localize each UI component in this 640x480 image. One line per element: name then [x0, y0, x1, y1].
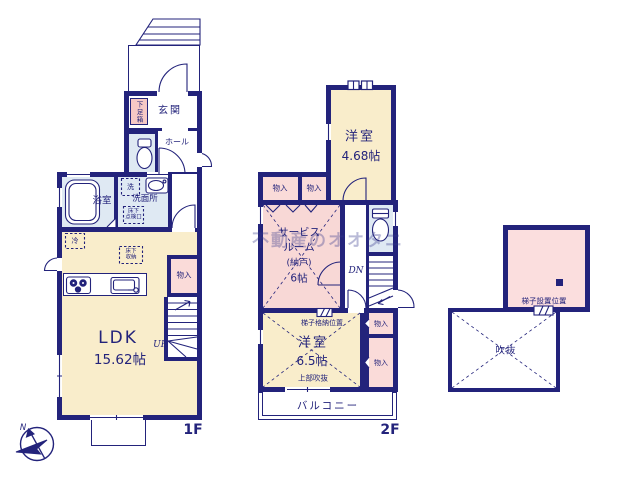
ladder-hatch-2f [317, 309, 332, 317]
closet-2f-top-a-label: 物入 [273, 185, 288, 194]
bedroom1-door-arc [343, 178, 366, 201]
bedroom2-door-arc [348, 290, 366, 308]
closet-door-chevrons [266, 205, 317, 212]
underfloor-access-l2: 点検口 [125, 215, 142, 221]
stairs-1f-treads [168, 301, 197, 358]
upper-void-label: 上部吹抜 [298, 375, 328, 384]
ladder-storage-label: 梯子格納位置 [301, 319, 343, 327]
service-room-l4: 6帖 [290, 272, 307, 284]
floor1-label: 1F [183, 422, 202, 438]
closet-right-chevrons [365, 319, 370, 368]
void-label: 吹抜 [495, 347, 516, 358]
flap-window-hall-right [202, 154, 212, 167]
attic-ladder-hatch [534, 306, 553, 315]
floor-plan-canvas: 玄関 下足箱 ホール 浴室 洗 洗面所 床下 点検口 冷 床下 収納 物入 UP… [0, 0, 640, 480]
underfloor-storage-l2: 収納 [125, 255, 136, 261]
bedroom1-top-windows [348, 81, 373, 90]
balcony-label: バルコニー [297, 400, 359, 412]
floor2-label: 2F [380, 422, 399, 438]
flap-window-stairs-right [398, 290, 414, 308]
entrance-label: 玄関 [158, 105, 182, 117]
closet-2f-top-b-label: 物入 [307, 185, 322, 194]
underfloor-access-label: 床下 点検口 [125, 209, 142, 222]
kitchen-sink-icon [111, 278, 139, 294]
compass-north-label: N [20, 424, 26, 434]
entry-steps [136, 19, 200, 45]
ldk-door-arc [172, 205, 195, 228]
stove-icon [67, 277, 91, 294]
stairs-up-label: UP [153, 340, 167, 350]
closet-2f-right-a-label: 物入 [374, 320, 388, 328]
service-room-l3: (納戸) [286, 259, 311, 269]
ldk-label: LDK [98, 329, 138, 349]
bedroom2-label: 洋室 [298, 337, 328, 352]
watermark: 不動産のオオタニ [252, 226, 404, 251]
ldk-size-label: 15.62帖 [94, 353, 146, 369]
washroom-label: 洗面所 [132, 195, 158, 205]
laundry-label: 洗 [127, 183, 134, 191]
bedroom1-size-label: 4.68帖 [342, 150, 381, 164]
underfloor-storage-label: 床下 収納 [125, 249, 136, 262]
closet-2f-right-b-label: 物入 [374, 359, 388, 367]
hall-label: ホール [165, 137, 189, 146]
shoe-box-label: 下足箱 [134, 101, 144, 124]
service-door-arc [318, 262, 341, 285]
flap-window-left [45, 258, 58, 271]
stairs-down-label: DN [348, 266, 363, 276]
attic-ladder-position-label: 梯子設置位置 [522, 298, 567, 307]
closet-1f-label: 物入 [177, 272, 192, 281]
washbasin-icon [146, 178, 168, 193]
toilet-1f-icon [137, 139, 152, 169]
fridge-label: 冷 [72, 237, 79, 245]
bathroom-label: 浴室 [92, 197, 111, 208]
entry-door-arc [159, 64, 187, 92]
bedroom1-label: 洋室 [345, 131, 375, 146]
hall-door-arc [159, 148, 185, 174]
stairs-2f-treads [369, 262, 393, 306]
bedroom2-size-label: 6.5帖 [296, 355, 327, 369]
